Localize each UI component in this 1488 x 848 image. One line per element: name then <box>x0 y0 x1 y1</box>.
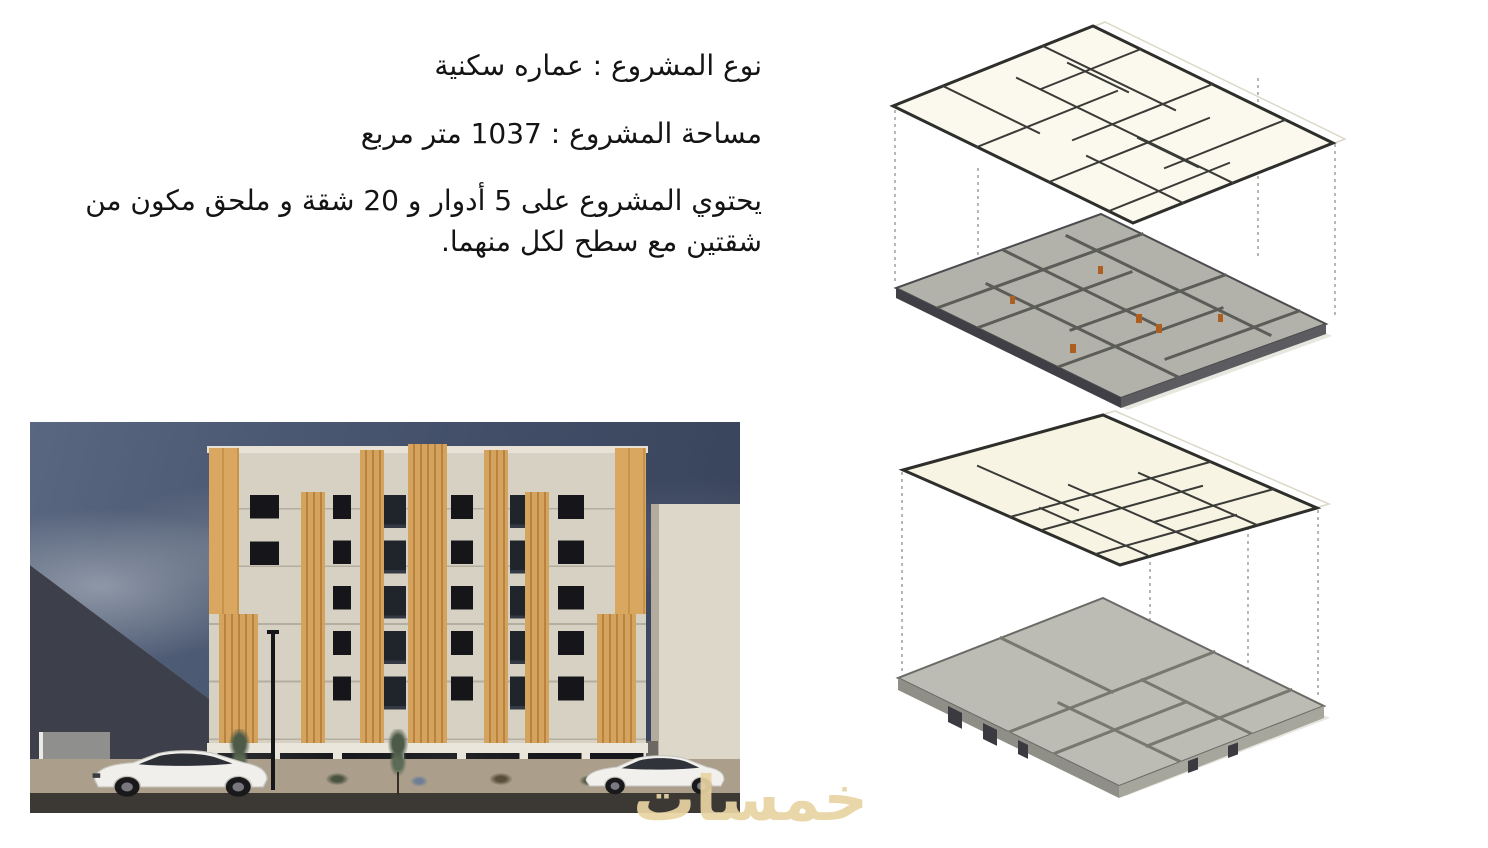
floor-model-3d <box>898 598 1330 798</box>
floor-plan-sheet <box>893 22 1345 223</box>
building-render-image <box>30 422 740 813</box>
window-column <box>333 495 350 722</box>
project-description-line: يحتوي المشروع على 5 أدوار و 20 شقة و ملح… <box>30 181 762 262</box>
wood-slat-panel <box>408 444 447 744</box>
car-left <box>83 740 275 801</box>
axon-figure-typical-floor <box>888 18 1340 408</box>
watermark: خمسات <box>648 768 868 848</box>
floor-plan-sheet <box>903 411 1329 565</box>
project-info-block: نوع المشروع : عماره سكنية مساحة المشروع … <box>30 46 762 262</box>
model-floor <box>896 214 1326 398</box>
window-column <box>250 495 278 588</box>
document-page: نوع المشروع : عماره سكنية مساحة المشروع … <box>0 0 1488 837</box>
project-type-line: نوع المشروع : عماره سكنية <box>30 46 762 87</box>
wood-slat-panel <box>219 614 258 743</box>
suv-illustration <box>83 740 275 801</box>
window-column <box>558 495 584 722</box>
wood-slat-panel <box>301 492 325 744</box>
wood-slat-panel <box>360 450 384 744</box>
project-area-line: مساحة المشروع : 1037 متر مربع <box>30 114 762 155</box>
wood-slat-panel <box>597 614 636 743</box>
floor-model-3d <box>896 214 1332 410</box>
wood-panel <box>615 448 646 614</box>
balcony-column <box>384 495 406 722</box>
tree-trunk <box>397 772 399 795</box>
window-column <box>451 495 473 722</box>
wood-panel <box>209 448 240 614</box>
wood-slat-panel <box>484 450 508 744</box>
balcony-column <box>510 495 524 722</box>
axon-figure-ground-floor <box>888 406 1340 806</box>
tree <box>384 729 412 795</box>
wood-slat-panel <box>525 492 549 744</box>
